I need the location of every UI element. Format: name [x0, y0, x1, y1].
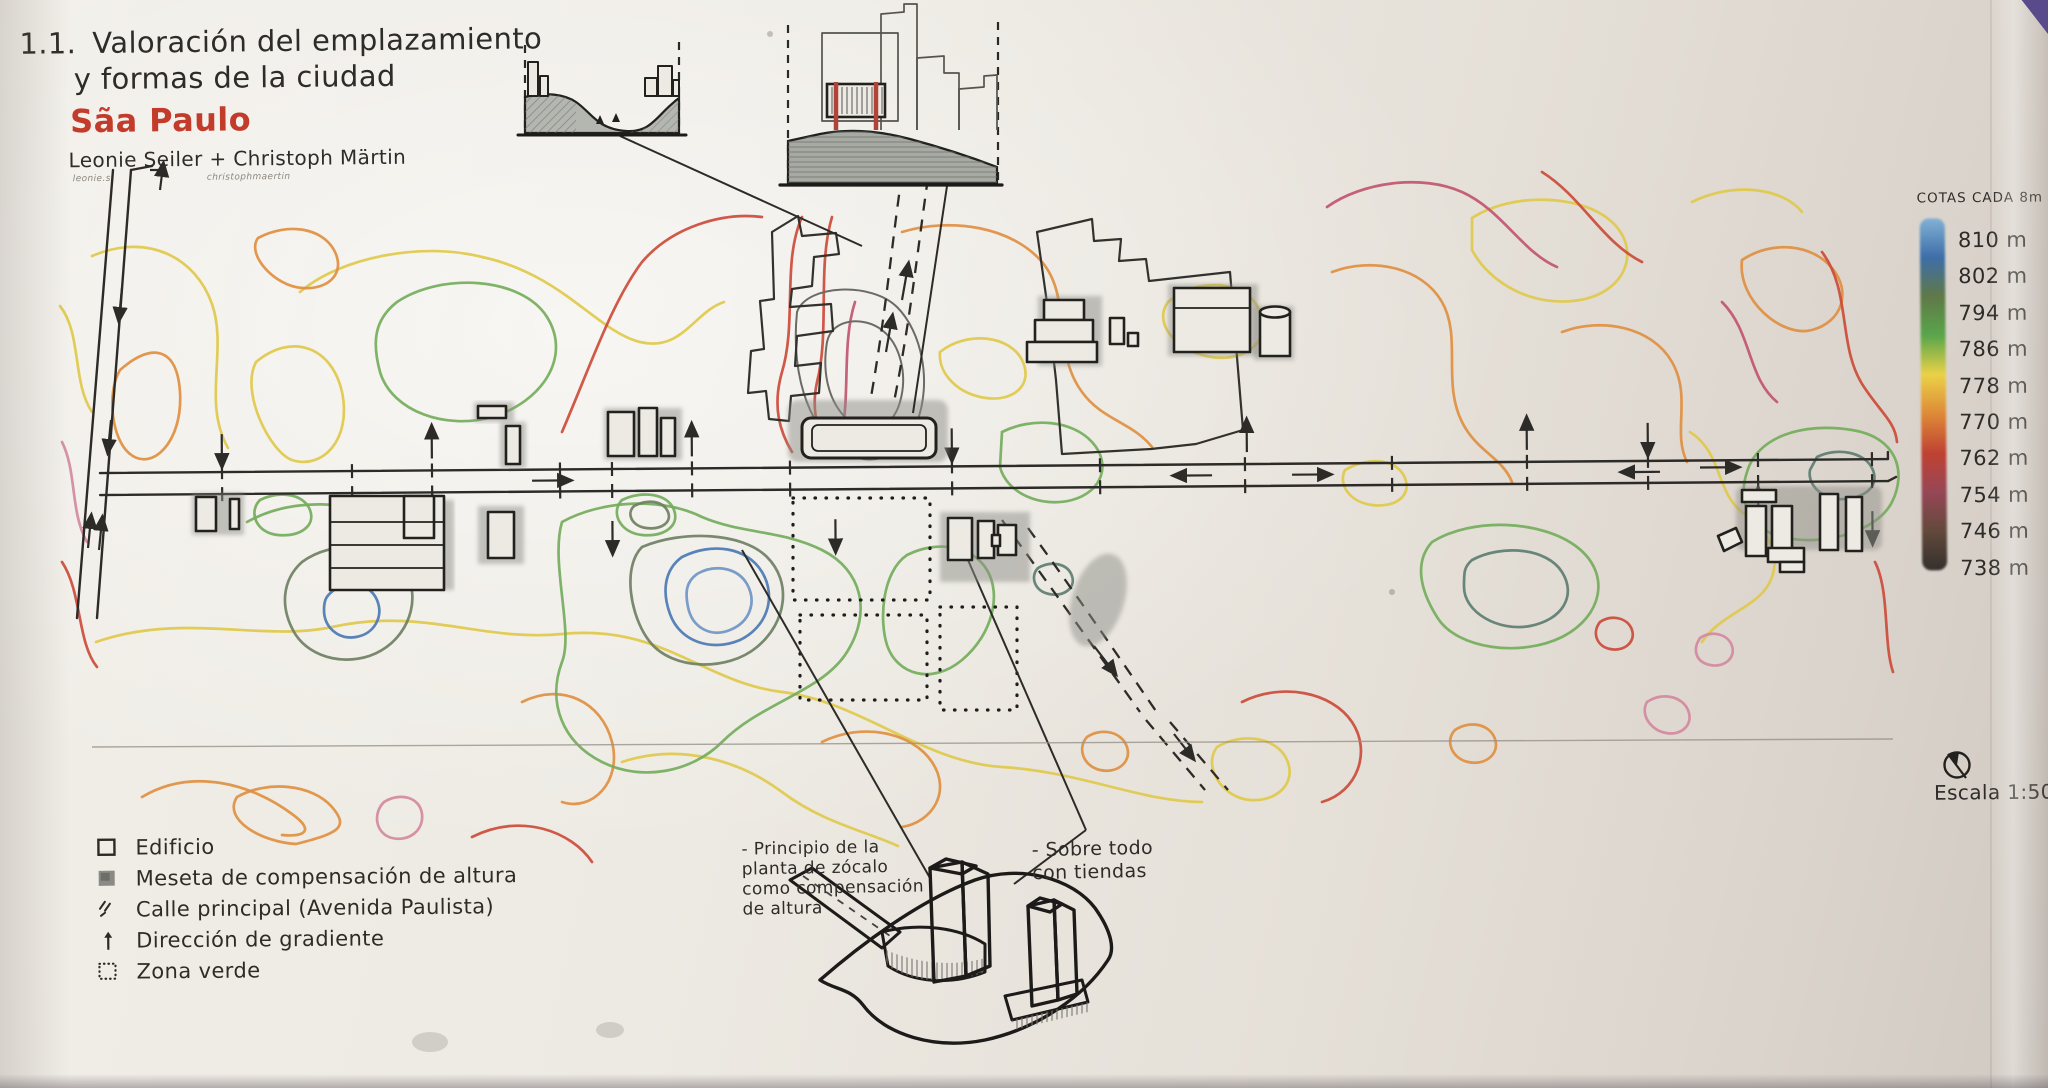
- left-road: [77, 166, 164, 618]
- annotation-line: con tiendas: [1032, 860, 1154, 885]
- city-label: Sãa Paulo: [70, 97, 543, 140]
- title-line1: Valoración del emplazamiento: [92, 21, 542, 60]
- legend-item-label: Edificio: [135, 835, 214, 860]
- elevation-gradient-bar: [1920, 218, 1947, 570]
- annotation-line: de altura: [742, 897, 924, 920]
- masp-section: [827, 82, 885, 130]
- legend-item: Zona verde: [96, 956, 518, 984]
- annotation-line: - Sobre todo: [1032, 837, 1154, 862]
- paper-crease: [1990, 0, 1992, 1088]
- north-arrow-icon: [1945, 752, 1970, 778]
- annotation-line: como compensación: [742, 877, 924, 900]
- title-block: 1.1.Valoración del emplazamiento y forma…: [19, 21, 543, 184]
- legend-item: Edificio: [95, 832, 517, 860]
- photo-edge-right: [1990, 0, 2048, 1088]
- gradient-arrows: [222, 417, 1873, 554]
- signature-left: leonie.s: [73, 174, 111, 184]
- annotation-zocalo: - Principio de la planta de zócalo como …: [741, 836, 924, 919]
- title-line2: y formas de la ciudad: [74, 57, 543, 96]
- shaded-square-icon: [96, 867, 120, 891]
- striped-block-building: [330, 496, 444, 590]
- dotted-square-icon: [96, 960, 120, 984]
- section-sketch-masp: [780, 4, 1002, 185]
- photo-edge-left: [0, 0, 70, 1088]
- signature-right: christophmaertin: [207, 172, 291, 183]
- legend-item: Calle principal (Avenida Paulista): [96, 894, 518, 922]
- hatch-marks-icon: [96, 898, 120, 922]
- legend-item: Meseta de compensación de altura: [96, 863, 518, 891]
- building-outline-icon: [95, 836, 119, 860]
- legend-item: Dirección de gradiente: [96, 925, 518, 953]
- legend-item-label: Meseta de compensación de altura: [136, 863, 518, 890]
- section-sketch-valley: [518, 42, 686, 135]
- legend-item-label: Dirección de gradiente: [136, 926, 384, 952]
- authors: Leonie Seiler + Christoph Märtin: [68, 143, 543, 172]
- photo-edge-bottom: [0, 1074, 2048, 1088]
- legend-item-label: Calle principal (Avenida Paulista): [136, 894, 494, 921]
- masp-building: [802, 418, 936, 458]
- leader-lines: [620, 136, 1086, 884]
- annotation-tiendas: - Sobre todo con tiendas: [1032, 837, 1154, 885]
- map-baseline: [92, 739, 1893, 747]
- page-title: 1.1.Valoración del emplazamiento: [19, 21, 542, 60]
- map-legend: EdificioMeseta de compensación de altura…: [95, 832, 518, 991]
- up-arrow-icon: [96, 929, 120, 953]
- street-ticks: [222, 452, 1872, 501]
- legend-item-label: Zona verde: [136, 958, 260, 983]
